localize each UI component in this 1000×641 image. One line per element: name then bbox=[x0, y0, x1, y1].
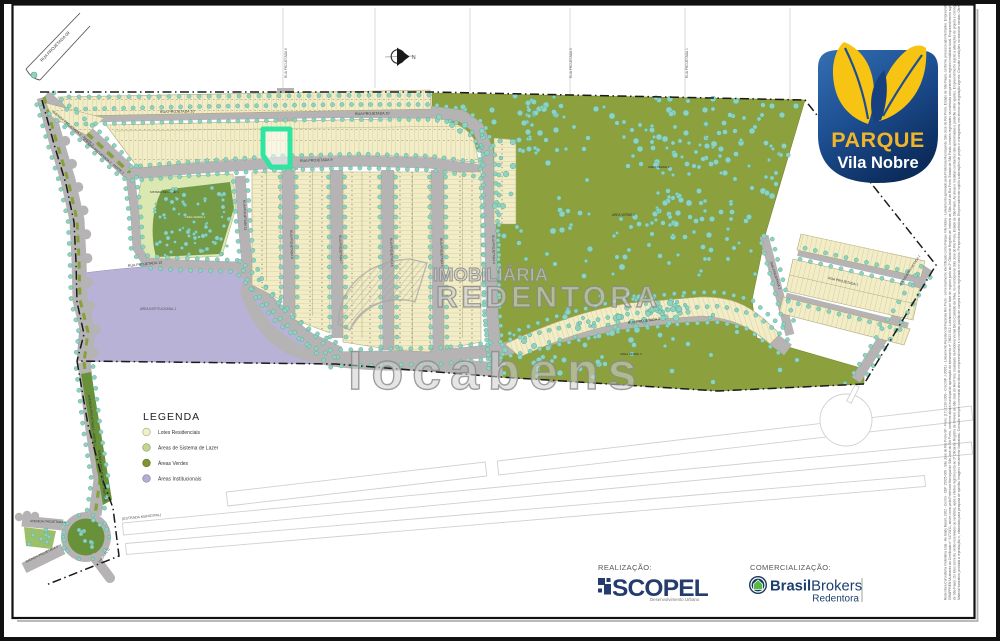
svg-text:Material ilustrativo, proibida: Material ilustrativo, proibida a reprodu… bbox=[957, 0, 961, 600]
svg-text:Vila Nobre: Vila Nobre bbox=[837, 154, 918, 172]
svg-text:Lotes Residenciais: Lotes Residenciais bbox=[158, 430, 200, 436]
svg-text:COMERCIALIZAÇÃO:: COMERCIALIZAÇÃO: bbox=[750, 563, 831, 572]
svg-text:RUA PROJETADA 1: RUA PROJETADA 1 bbox=[685, 48, 689, 78]
svg-text:RUA PROJETADA 10: RUA PROJETADA 10 bbox=[355, 111, 390, 116]
svg-text:AREA VERDE 2: AREA VERDE 2 bbox=[612, 213, 635, 217]
svg-text:RUA PROJETADA 6: RUA PROJETADA 6 bbox=[284, 48, 288, 78]
svg-text:Áreas Institucionais: Áreas Institucionais bbox=[158, 475, 202, 482]
svg-text:RUA PROJETADA 8: RUA PROJETADA 8 bbox=[569, 48, 573, 78]
svg-text:de São Paulo. Os lotes somente: de São Paulo. Os lotes somente serão res… bbox=[953, 0, 957, 600]
svg-text:REALIZAÇÃO:: REALIZAÇÃO: bbox=[598, 563, 652, 572]
svg-text:Áreas de Sistema de Lazer: Áreas de Sistema de Lazer bbox=[158, 444, 219, 451]
svg-text:BrasilBrokers: BrasilBrokers bbox=[770, 579, 862, 595]
svg-text:REDENTORA: REDENTORA bbox=[436, 281, 661, 314]
svg-text:locabens: locabens bbox=[348, 343, 645, 401]
svg-text:RUA PROJETADA 10: RUA PROJETADA 10 bbox=[160, 109, 195, 114]
svg-text:Desenvolvimento Urbano: Desenvolvimento Urbano bbox=[650, 597, 700, 602]
svg-text:Áreas Verdes: Áreas Verdes bbox=[158, 460, 189, 467]
svg-text:GRAFPRENSA através do Certific: GRAFPRENSA através do Certificado nº 447… bbox=[948, 0, 952, 600]
svg-text:LEGENDA: LEGENDA bbox=[143, 411, 200, 423]
svg-text:AREA VERDE 2: AREA VERDE 2 bbox=[648, 165, 670, 169]
svg-text:SISTEMA DE LAZER 1: SISTEMA DE LAZER 1 bbox=[150, 190, 179, 194]
svg-text:N: N bbox=[412, 55, 416, 61]
svg-text:Redentora: Redentora bbox=[812, 594, 859, 605]
svg-text:AREA INSTITUCIONAL 1: AREA INSTITUCIONAL 1 bbox=[140, 307, 176, 311]
svg-text:PARQUE: PARQUE bbox=[831, 128, 924, 152]
svg-text:Redentora Consultoria Imobiliá: Redentora Consultoria Imobiliária Ltda -… bbox=[944, 0, 948, 600]
